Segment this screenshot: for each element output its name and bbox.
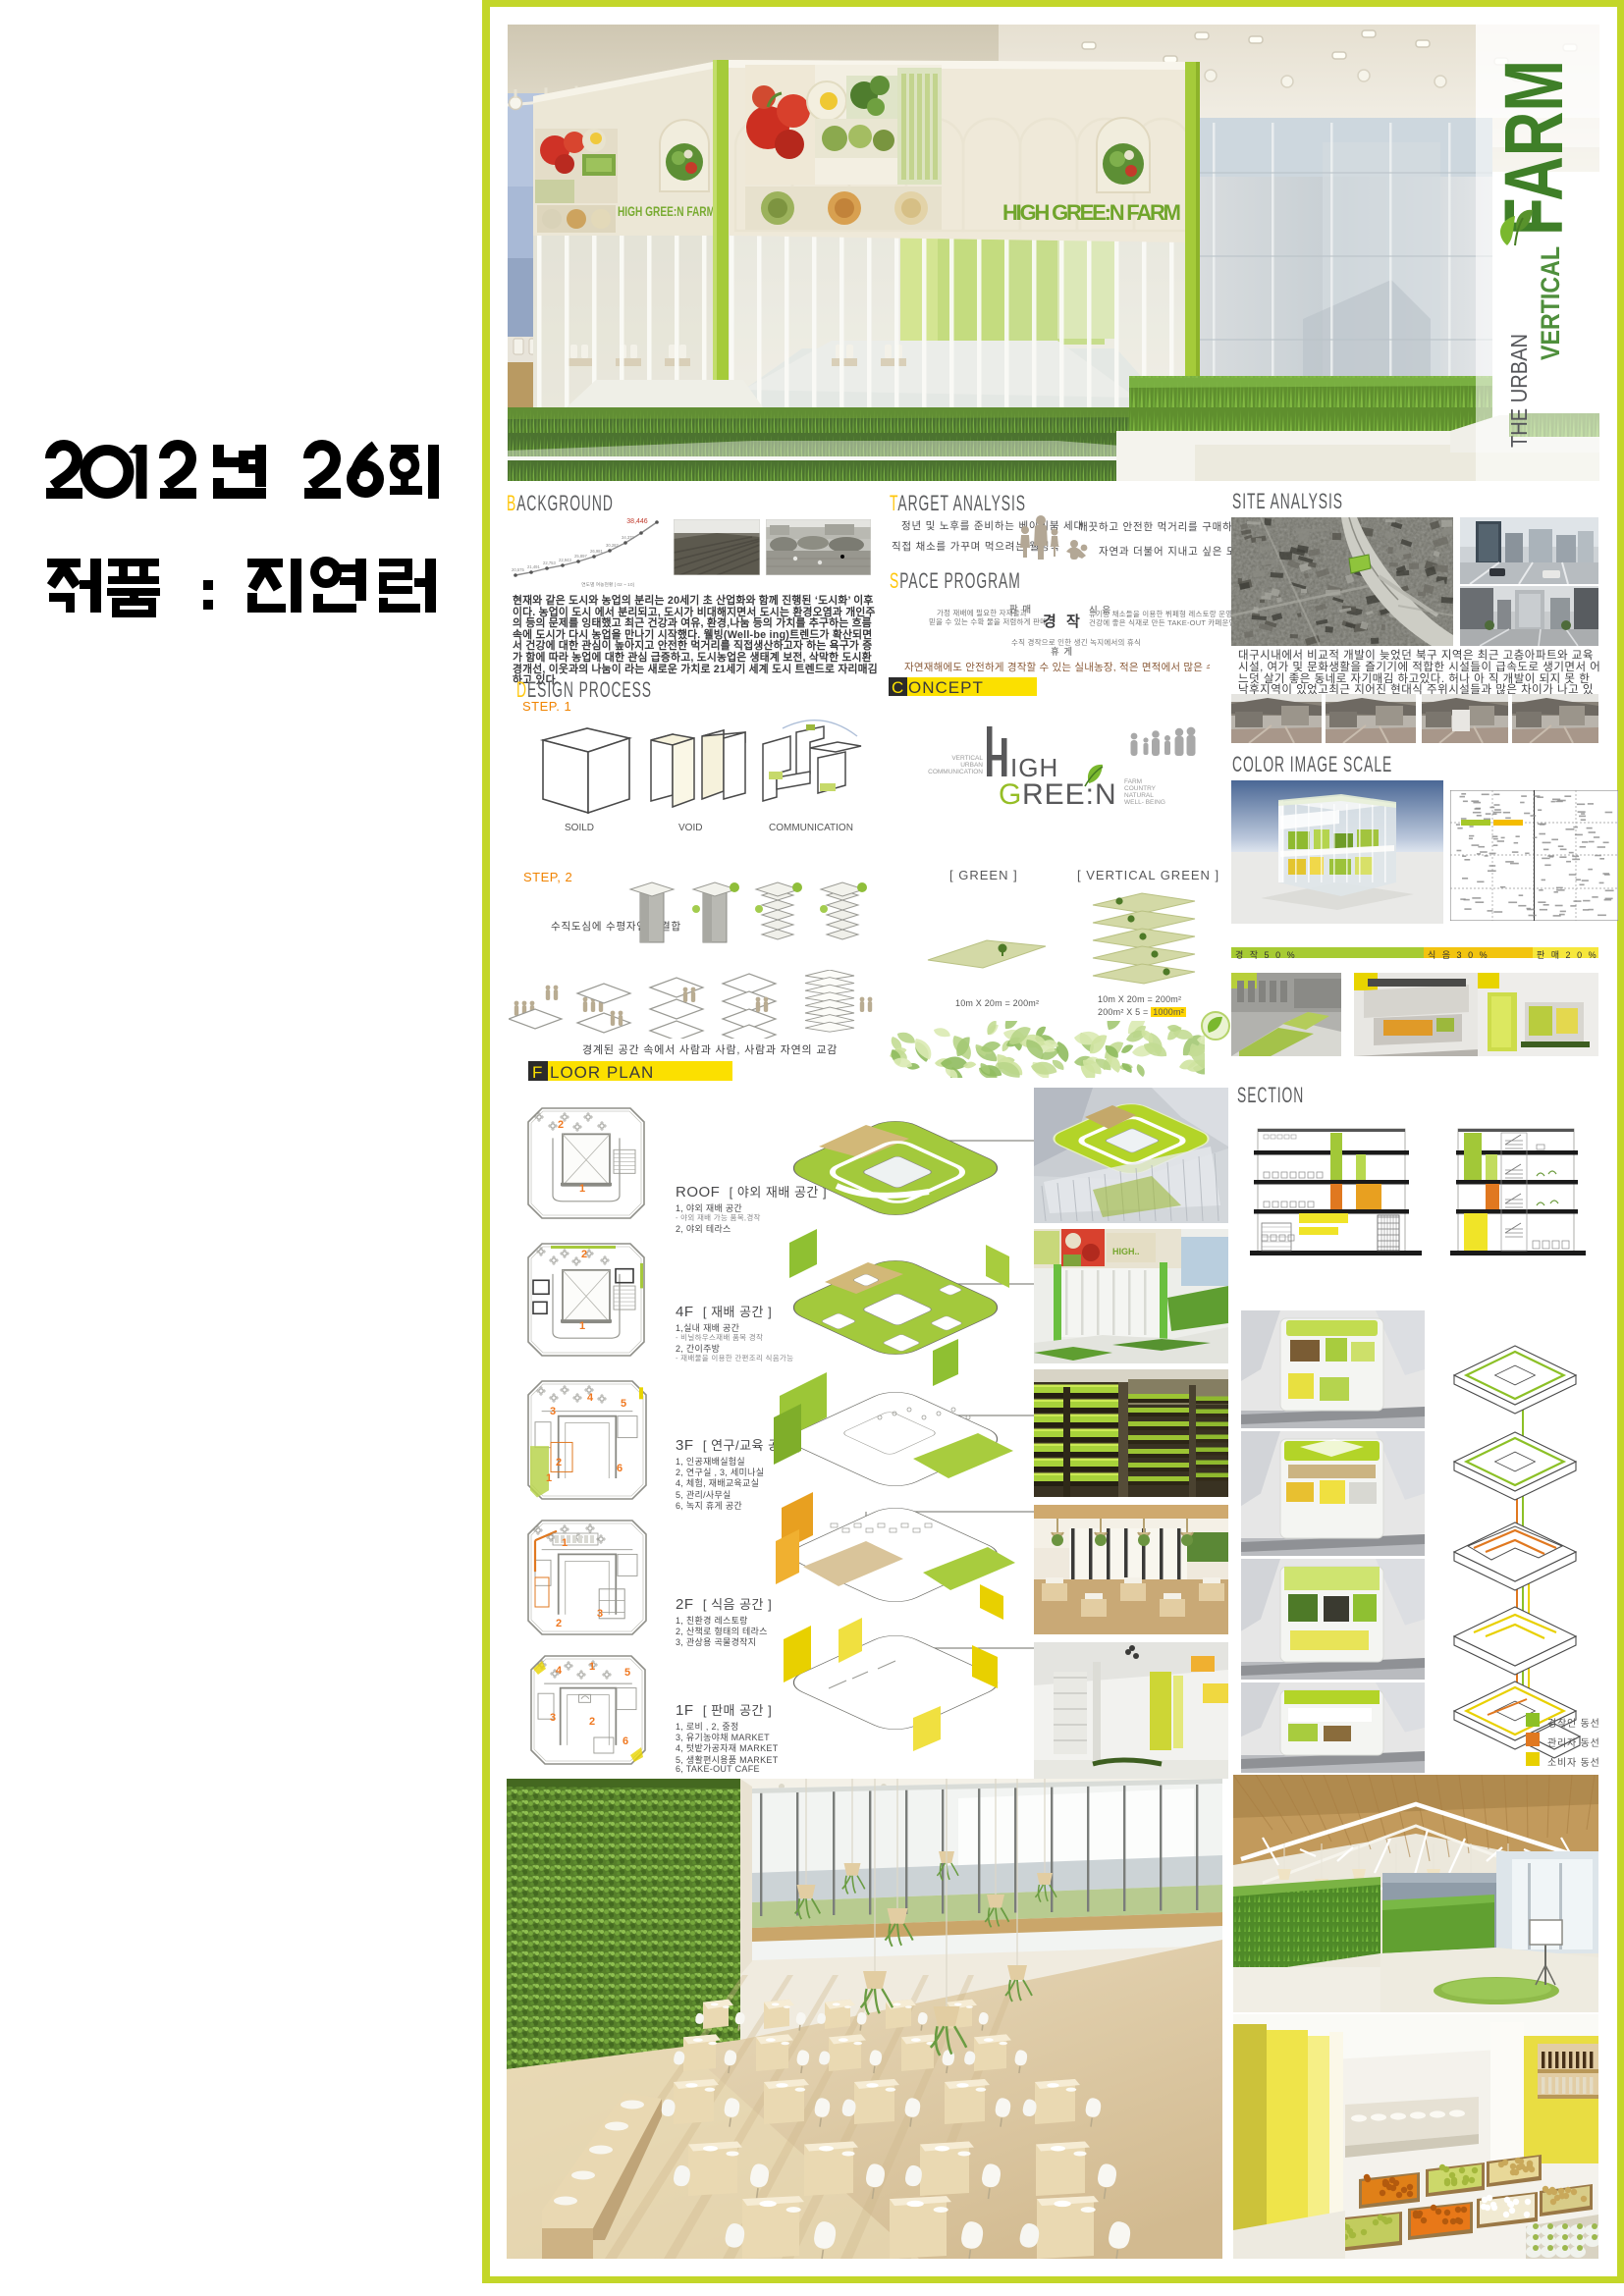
svg-text:VERTICAL: VERTICAL <box>1536 246 1565 360</box>
svg-text:HIGH..: HIGH.. <box>1112 1247 1140 1256</box>
svg-text:38,446: 38,446 <box>626 518 648 525</box>
svg-text:NATURAL: NATURAL <box>1124 792 1154 799</box>
svg-text:연도별 여농현황 [ 02 ~ 10]: 연도별 여농현황 [ 02 ~ 10] <box>581 581 634 588</box>
svg-text:WELL- BEING: WELL- BEING <box>1124 799 1165 806</box>
svg-text:HIGH GREE:N FARM: HIGH GREE:N FARM <box>618 203 715 219</box>
svg-text:HIGH GREE:N FARM: HIGH GREE:N FARM <box>1002 200 1181 225</box>
svg-text:COUNTRY: COUNTRY <box>1124 785 1157 792</box>
svg-text:22,753: 22,753 <box>543 561 556 565</box>
svg-text:25,897: 25,897 <box>574 554 587 559</box>
svg-text:21,491: 21,491 <box>527 564 540 569</box>
svg-text:FARM: FARM <box>1124 778 1142 785</box>
svg-text:30,282: 30,282 <box>606 543 619 548</box>
svg-text:34,379: 34,379 <box>622 535 634 540</box>
svg-text:G: G <box>999 778 1021 811</box>
svg-text:THE URBAN: THE URBAN <box>1506 334 1532 448</box>
svg-text:VERTICAL: VERTICAL <box>951 755 983 762</box>
svg-text:20,575: 20,575 <box>512 567 524 572</box>
svg-text:COMMUNICATION: COMMUNICATION <box>928 769 983 775</box>
svg-text:COMMUNICATION: COMMUNICATION <box>769 823 853 833</box>
svg-text:26,981: 26,981 <box>590 549 603 554</box>
svg-text:REE:N: REE:N <box>1022 778 1117 811</box>
svg-text:VOID: VOID <box>678 823 702 833</box>
svg-text:SOILD: SOILD <box>565 823 594 833</box>
svg-text:URBAN: URBAN <box>960 762 983 769</box>
svg-text:FARM: FARM <box>1488 60 1580 236</box>
svg-text:22,943: 22,943 <box>559 558 571 562</box>
